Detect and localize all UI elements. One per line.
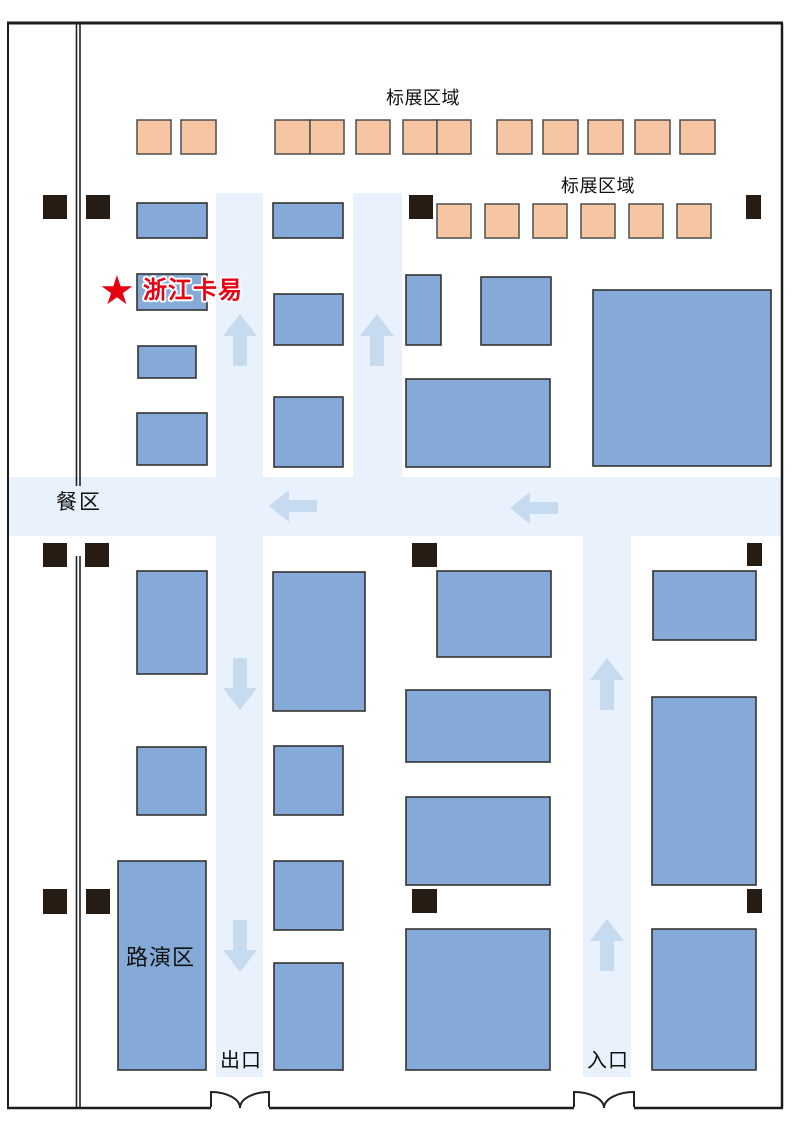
- booth-blue: [406, 379, 550, 467]
- booth-blue: [137, 413, 207, 465]
- booth-blue: [652, 929, 756, 1070]
- booth-standard-orange: [403, 120, 437, 154]
- standard-zone-label-top: 标展区域: [386, 89, 460, 107]
- booth-blue: [406, 275, 441, 345]
- booth-blue: [274, 294, 343, 345]
- pillar: [43, 543, 67, 567]
- booth-blue: [481, 277, 551, 345]
- booth-blue: [273, 572, 365, 711]
- booth-blue: [406, 929, 550, 1070]
- booth-blue: [274, 963, 343, 1070]
- pillar: [43, 195, 67, 219]
- booth-blue: [593, 290, 771, 466]
- dining-area-label: 餐区: [56, 492, 102, 513]
- pillar: [85, 543, 109, 567]
- exit-door: [211, 1092, 269, 1108]
- booth-blue: [406, 690, 550, 762]
- roadshow-area-label: 路演区: [126, 947, 195, 969]
- booth-standard-orange: [581, 204, 615, 238]
- pillar: [746, 195, 761, 219]
- entrance-door: [574, 1092, 634, 1108]
- exhibition-floor-map: 标展区域 标展区域 ★ 浙江卡易 餐区 路演区 出口 入口: [0, 0, 794, 1121]
- exit-label: 出口: [220, 1051, 262, 1071]
- booth-standard-orange: [310, 120, 344, 154]
- entrance-label: 入口: [587, 1051, 629, 1071]
- aisle-right-vertical: [583, 477, 631, 1077]
- pillar: [747, 543, 762, 566]
- floorplan-drawing: [0, 0, 794, 1121]
- booth-standard-orange: [437, 204, 471, 238]
- booth-blue: [138, 346, 196, 378]
- booth-standard-orange: [680, 120, 715, 154]
- booth-blue: [274, 746, 343, 815]
- booth-blue: [137, 747, 206, 815]
- highlight-booth-label: 浙江卡易: [143, 279, 243, 303]
- booth-blue: [274, 397, 343, 467]
- booth-standard-orange: [137, 120, 171, 154]
- pillar: [747, 889, 762, 913]
- booth-standard-orange: [275, 120, 310, 154]
- pillar: [43, 889, 67, 914]
- aisle-horizontal: [9, 477, 781, 536]
- booth-blue: [137, 203, 207, 238]
- pillar: [412, 889, 437, 913]
- booth-blue: [437, 571, 551, 657]
- pillar: [86, 889, 110, 914]
- booth-standard-orange: [437, 120, 471, 154]
- booth-standard-orange: [588, 120, 623, 154]
- booth-standard-orange: [485, 204, 519, 238]
- booth-standard-orange: [181, 120, 216, 154]
- pillar: [86, 195, 110, 219]
- standard-zone-label-right: 标展区域: [561, 177, 635, 195]
- booth-standard-orange: [629, 204, 663, 238]
- pillar: [412, 543, 437, 567]
- booth-blue: [137, 571, 207, 674]
- booth-standard-orange: [356, 120, 390, 154]
- highlight-star-icon: ★: [99, 271, 135, 311]
- booth-blue: [274, 861, 343, 930]
- booth-standard-orange: [635, 120, 670, 154]
- pillar: [409, 195, 433, 219]
- booth-standard-orange: [533, 204, 567, 238]
- booth-blue: [652, 697, 756, 885]
- booth-blue: [653, 571, 756, 640]
- booths-layer: [118, 120, 771, 1070]
- booth-blue: [406, 797, 550, 885]
- booth-standard-orange: [677, 204, 711, 238]
- booth-standard-orange: [497, 120, 532, 154]
- booth-blue: [273, 203, 343, 238]
- booth-standard-orange: [543, 120, 578, 154]
